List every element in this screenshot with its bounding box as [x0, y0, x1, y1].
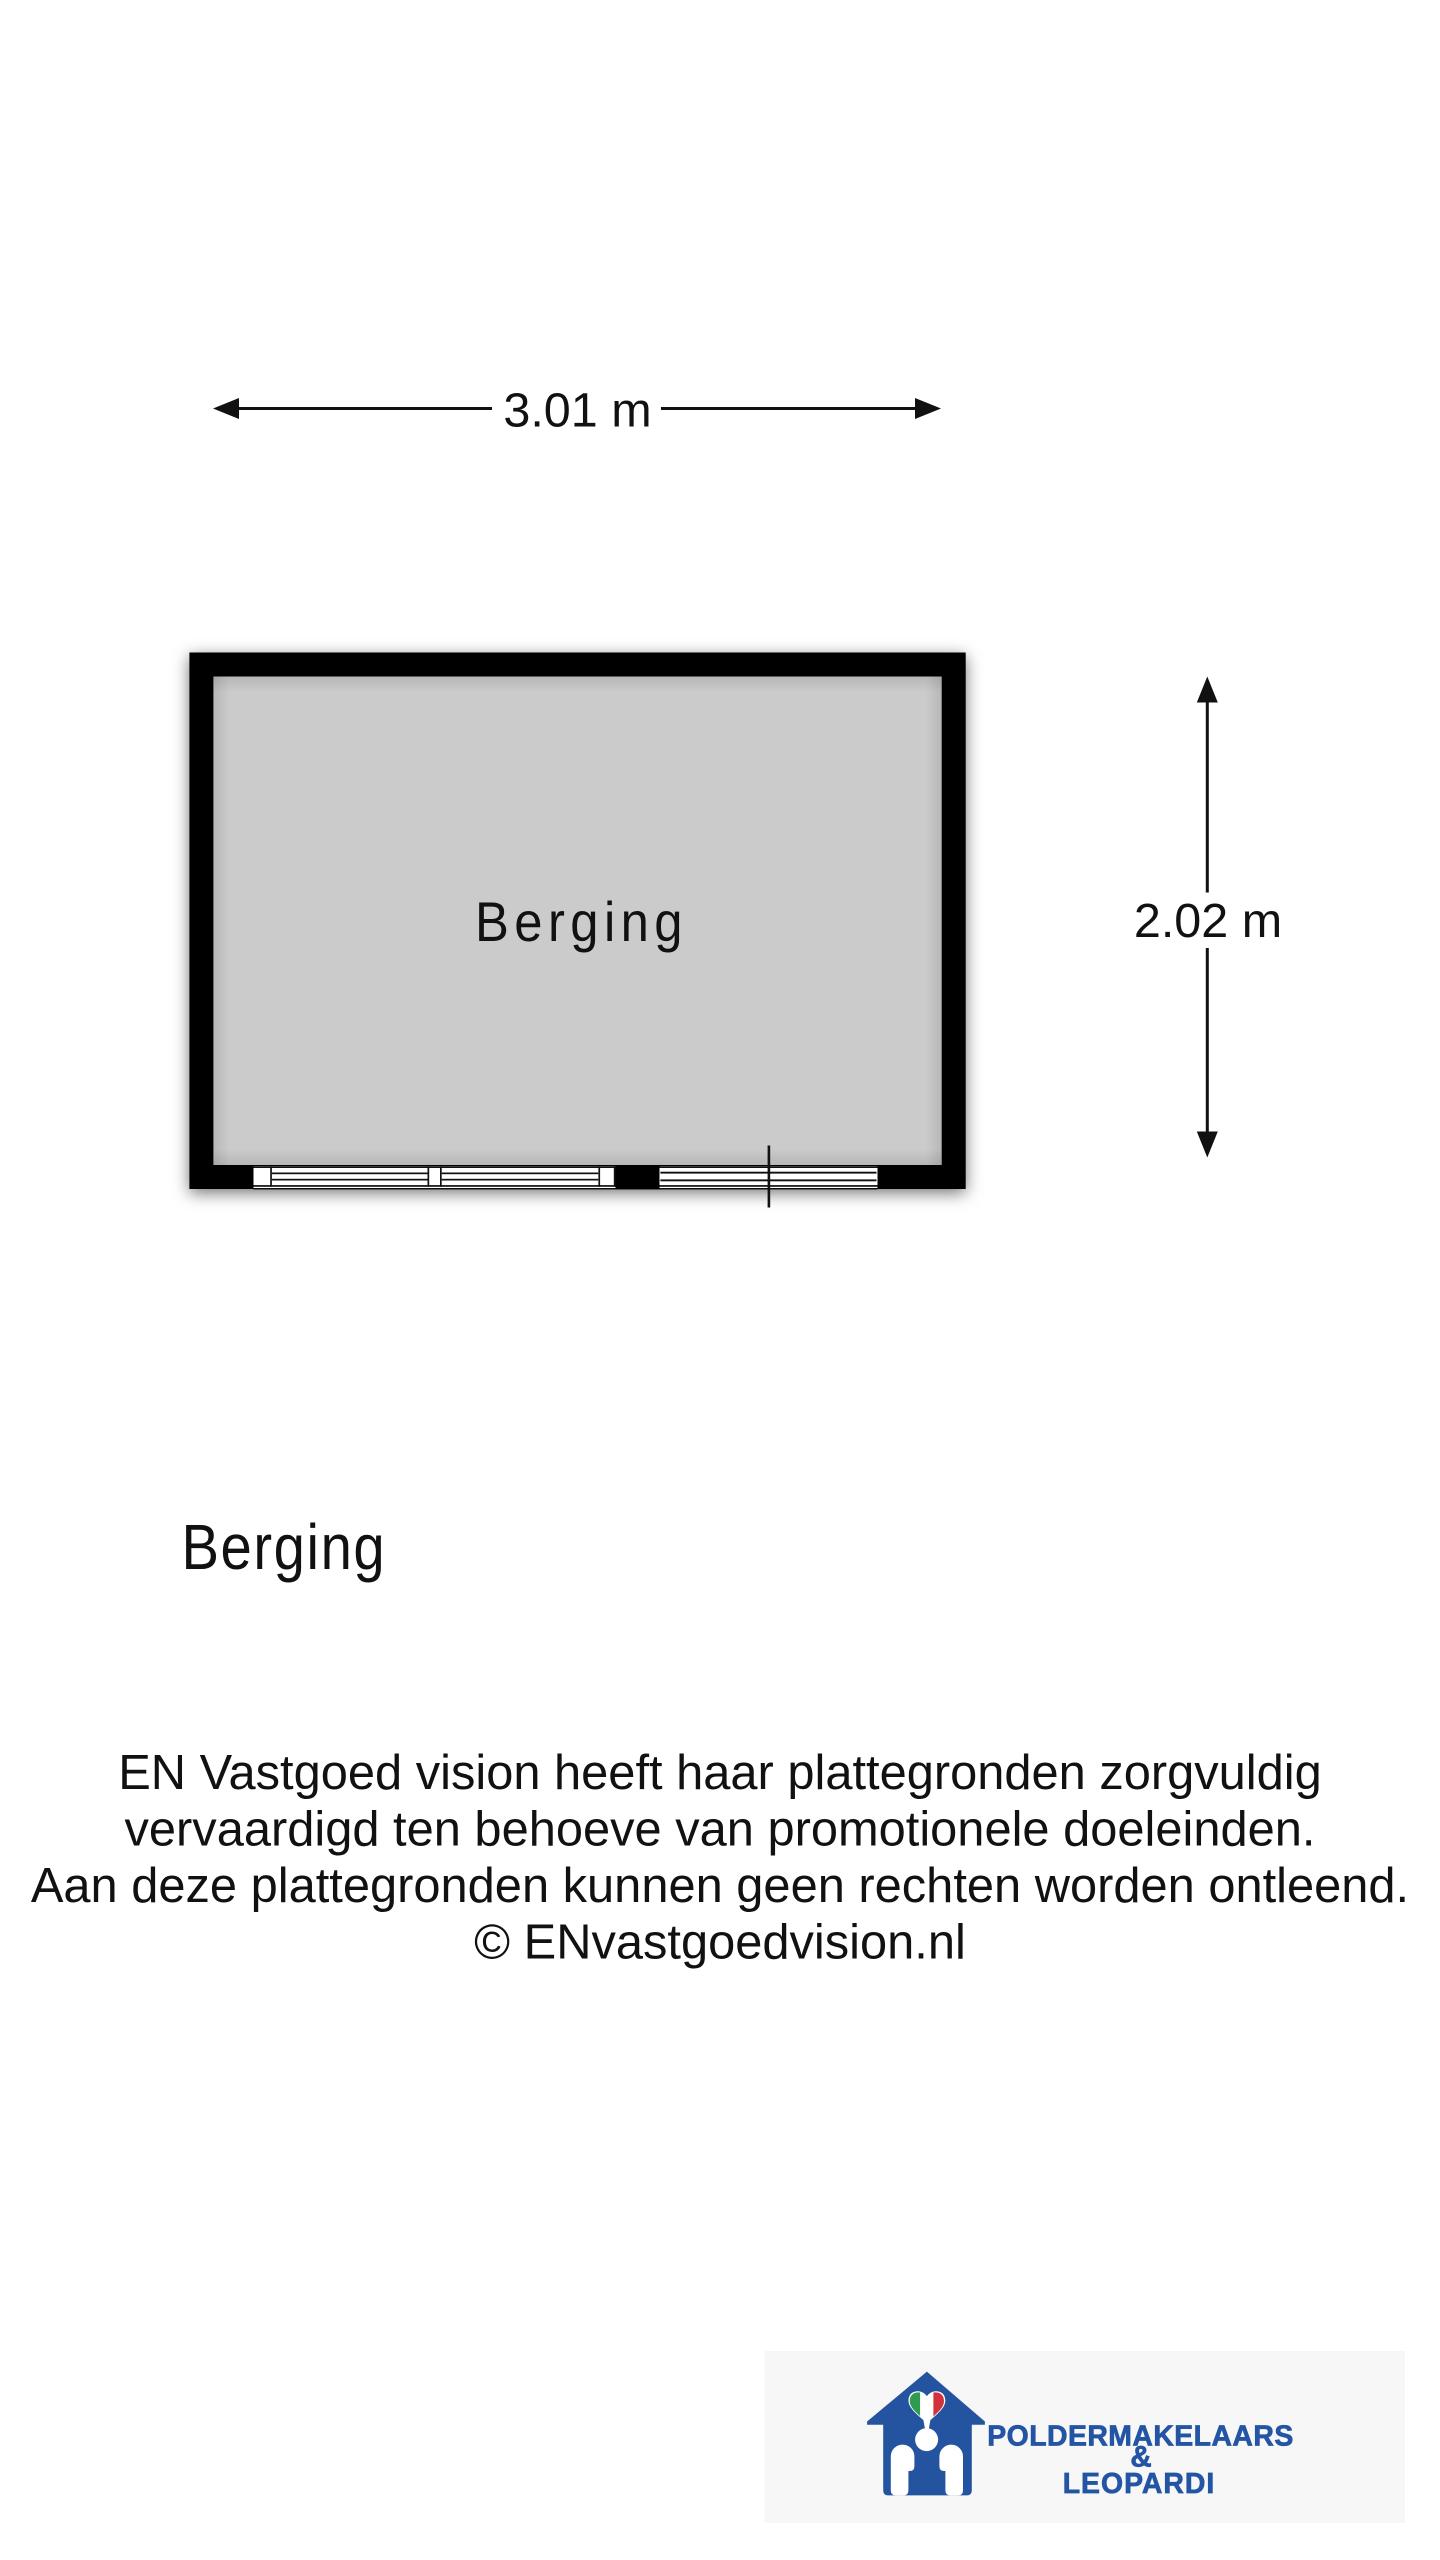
svg-text:Berging: Berging [181, 1510, 386, 1582]
svg-text:Berging: Berging [475, 892, 688, 953]
svg-text:3.01 m: 3.01 m [503, 383, 651, 437]
svg-text:EN Vastgoed vision heeft haar: EN Vastgoed vision heeft haar plattegron… [118, 1746, 1322, 1800]
svg-text:© ENvastgoedvision.nl: © ENvastgoedvision.nl [474, 1916, 966, 1970]
svg-text:Aan deze plattegronden kunnen: Aan deze plattegronden kunnen geen recht… [31, 1859, 1409, 1913]
svg-text:vervaardigd ten behoeve van pr: vervaardigd ten behoeve van promotionele… [125, 1803, 1316, 1857]
svg-text:2.02 m: 2.02 m [1134, 894, 1282, 948]
svg-text:LEOPARDI: LEOPARDI [1063, 2468, 1216, 2500]
